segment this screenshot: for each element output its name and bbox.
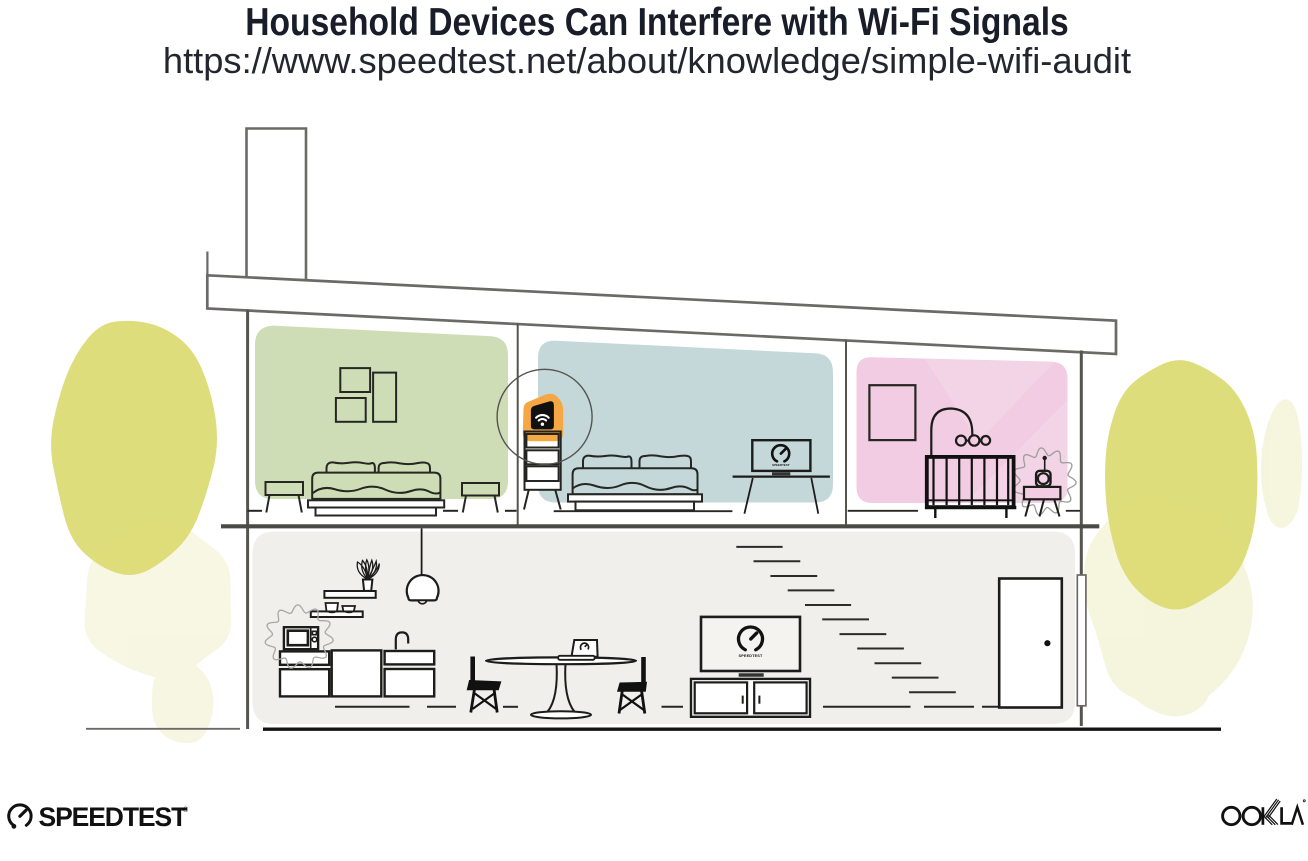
svg-text:SPEEDTEST: SPEEDTEST: [739, 654, 763, 658]
svg-text:SPEEDTEST: SPEEDTEST: [39, 802, 188, 832]
svg-text:®: ®: [183, 806, 189, 814]
svg-text:SPEEDTEST: SPEEDTEST: [772, 463, 790, 467]
